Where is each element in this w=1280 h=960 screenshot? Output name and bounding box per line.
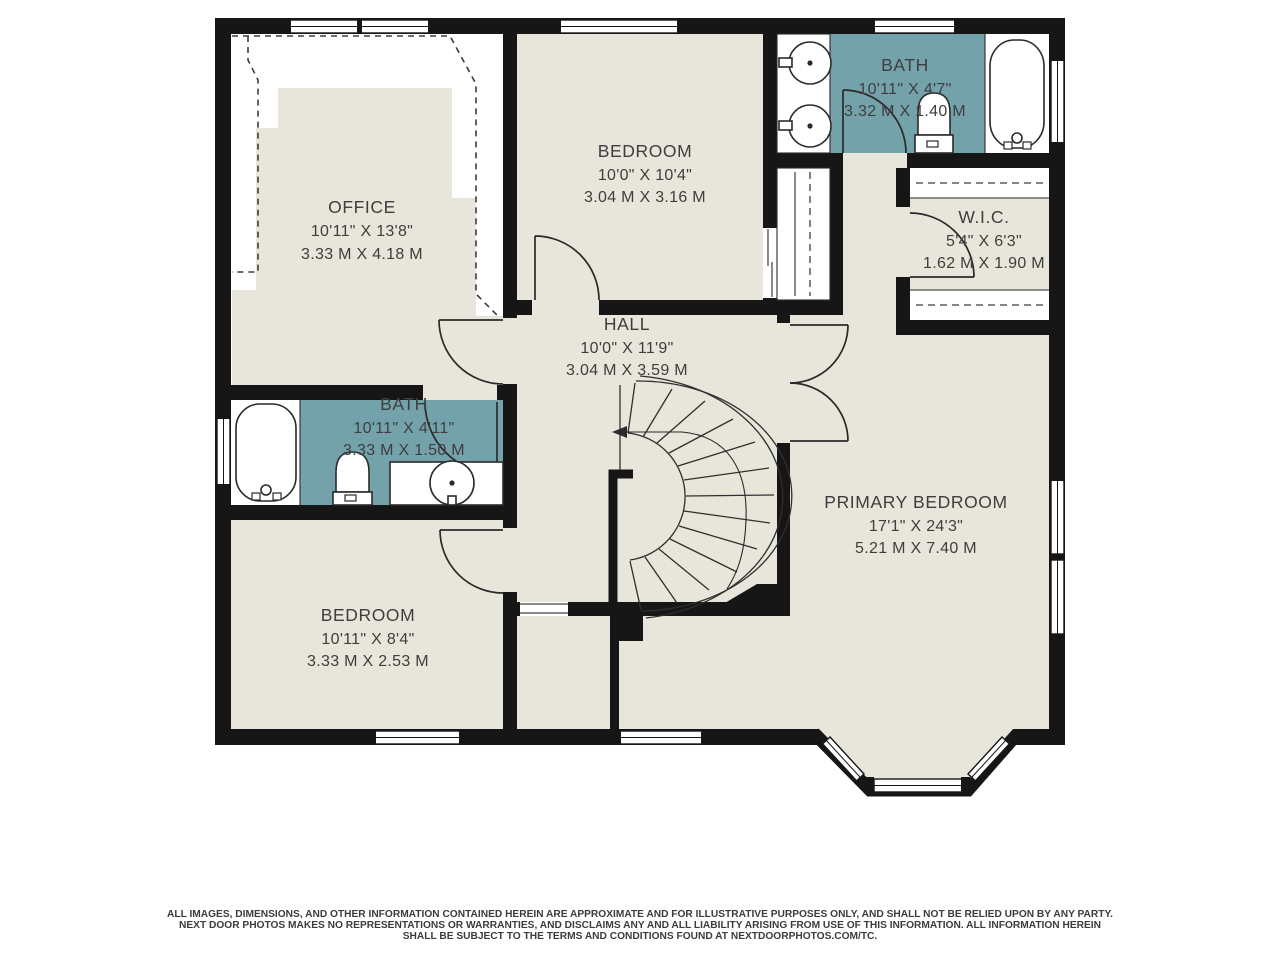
bedroom-bottom-label: BEDROOM 10'11" X 8'4" 3.33 M X 2.53 M [307, 605, 429, 670]
svg-text:3.04 M X 3.59 M: 3.04 M X 3.59 M [566, 362, 688, 379]
svg-text:5'4" X 6'3": 5'4" X 6'3" [946, 233, 1022, 250]
svg-text:BATH: BATH [380, 394, 428, 414]
svg-text:W.I.C.: W.I.C. [958, 207, 1009, 227]
faucet-icon [448, 496, 456, 505]
nook-floor [517, 616, 610, 729]
svg-text:BATH: BATH [881, 55, 929, 75]
closet-sliding-door [763, 228, 777, 298]
svg-text:3.33 M X 1.50 M: 3.33 M X 1.50 M [343, 442, 465, 459]
bath-left-door-opening [423, 385, 497, 400]
svg-text:10'11" X 4'11": 10'11" X 4'11" [353, 420, 454, 437]
svg-text:10'0" X 10'4": 10'0" X 10'4" [598, 167, 692, 184]
bathtub-icon [236, 400, 300, 505]
svg-text:3.33 M X 2.53 M: 3.33 M X 2.53 M [307, 653, 429, 670]
svg-text:BEDROOM: BEDROOM [321, 605, 416, 625]
wall-nook-primary [610, 612, 619, 729]
svg-text:17'1" X 24'3": 17'1" X 24'3" [869, 518, 963, 535]
bathtub-icon [985, 34, 1044, 153]
disclaimer-line-2: NEXT DOOR PHOTOS MAKES NO REPRESENTATION… [179, 920, 1101, 931]
svg-text:5.21 M X 7.40 M: 5.21 M X 7.40 M [855, 540, 977, 557]
svg-text:10'11" X 4'7": 10'11" X 4'7" [858, 81, 951, 98]
svg-text:PRIMARY BEDROOM: PRIMARY BEDROOM [824, 492, 1007, 512]
wall-wic-primary [896, 320, 1065, 335]
disclaimer-line-3: SHALL BE SUBJECT TO THE TERMS AND CONDIT… [403, 931, 878, 942]
office-name: OFFICE [328, 197, 396, 217]
bedroom-top-label: BEDROOM 10'0" X 10'4" 3.04 M X 3.16 M [584, 141, 706, 206]
bedroom-bottom-door-opening [503, 528, 517, 592]
office-door-opening [503, 318, 517, 384]
wall-bath-top-bottom [763, 153, 1065, 168]
bedroom-top-door-opening [532, 300, 599, 315]
disclaimer: ALL IMAGES, DIMENSIONS, AND OTHER INFORM… [167, 909, 1113, 942]
office-metric: 3.33 M X 4.18 M [301, 246, 423, 263]
disclaimer-line-1: ALL IMAGES, DIMENSIONS, AND OTHER INFORM… [167, 909, 1113, 920]
office-imperial: 10'11" X 13'8" [311, 223, 413, 240]
svg-text:HALL: HALL [604, 314, 650, 334]
svg-text:3.04 M X 3.16 M: 3.04 M X 3.16 M [584, 189, 706, 206]
faucet-icon [779, 58, 792, 67]
svg-text:10'0" X 11'9": 10'0" X 11'9" [580, 340, 673, 357]
toilet-icon [333, 452, 372, 505]
wall-closet-corridor [830, 168, 843, 315]
primary-double-door-opening [777, 323, 790, 443]
primary-floor-bottom [618, 616, 790, 729]
svg-text:BEDROOM: BEDROOM [598, 141, 693, 161]
faucet-icon [779, 121, 792, 130]
floor-plan: OFFICE 10'11" X 13'8" 3.33 M X 4.18 M BE… [0, 0, 1280, 960]
closet-floor [777, 168, 830, 300]
toilet-icon [915, 93, 953, 153]
svg-text:3.32 M X 1.40 M: 3.32 M X 1.40 M [844, 103, 966, 120]
vanity-left [390, 461, 503, 505]
bath-top-door-opening [843, 153, 907, 168]
corridor-floor [843, 168, 896, 335]
svg-text:10'11" X 8'4": 10'11" X 8'4" [321, 631, 414, 648]
wall-bath-bedroom [215, 505, 517, 520]
wic-door-opening [896, 207, 910, 277]
wall-stair-block [618, 602, 643, 641]
svg-text:1.62 M X 1.90 M: 1.62 M X 1.90 M [923, 255, 1045, 272]
